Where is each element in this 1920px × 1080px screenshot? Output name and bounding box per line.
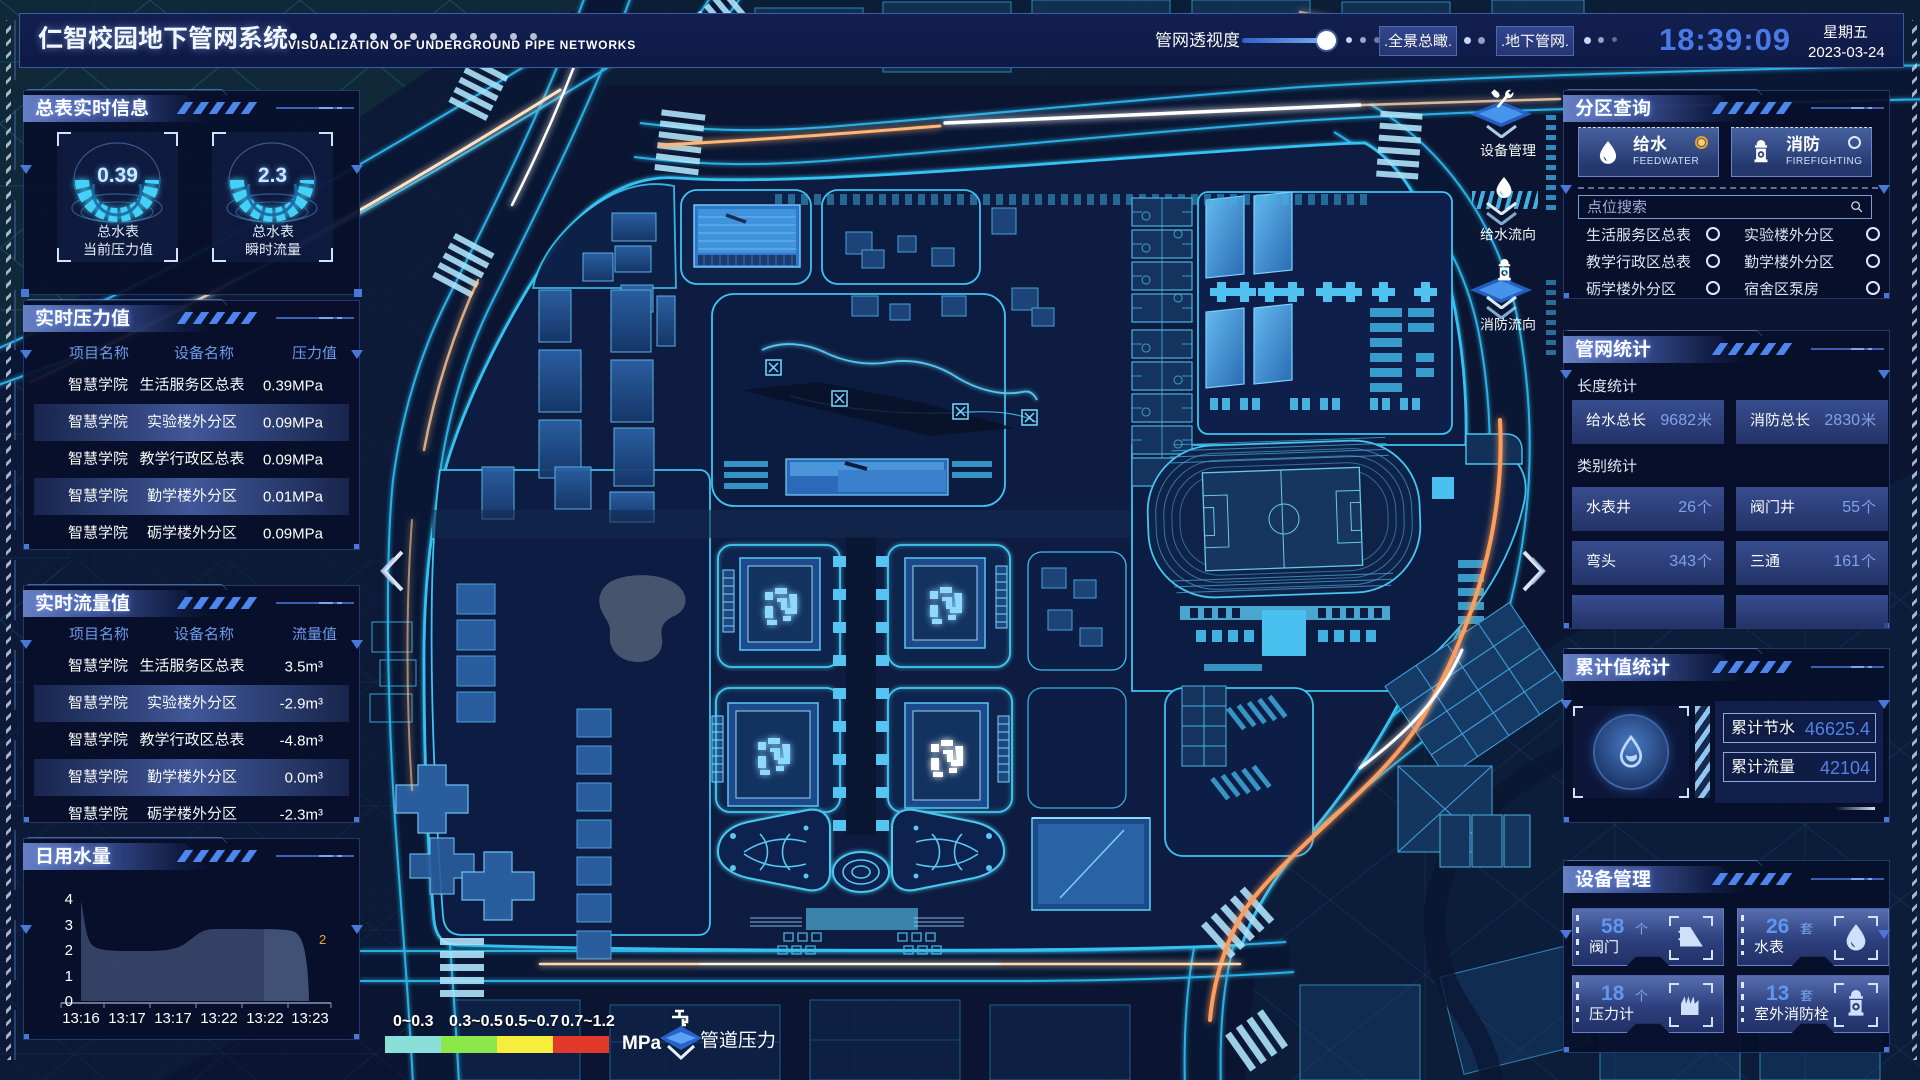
svg-text:2: 2 — [319, 932, 326, 947]
svg-text:13:22: 13:22 — [200, 1010, 238, 1027]
svg-text:3: 3 — [65, 917, 73, 934]
svg-text:13:16: 13:16 — [62, 1010, 100, 1027]
svg-text:13:23: 13:23 — [291, 1010, 329, 1027]
svg-text:4: 4 — [65, 891, 73, 908]
svg-text:0: 0 — [65, 993, 73, 1010]
svg-text:1: 1 — [65, 968, 73, 985]
svg-text:13:17: 13:17 — [154, 1010, 192, 1027]
svg-text:2: 2 — [65, 942, 73, 959]
svg-text:13:22: 13:22 — [246, 1010, 284, 1027]
svg-text:13:17: 13:17 — [108, 1010, 146, 1027]
